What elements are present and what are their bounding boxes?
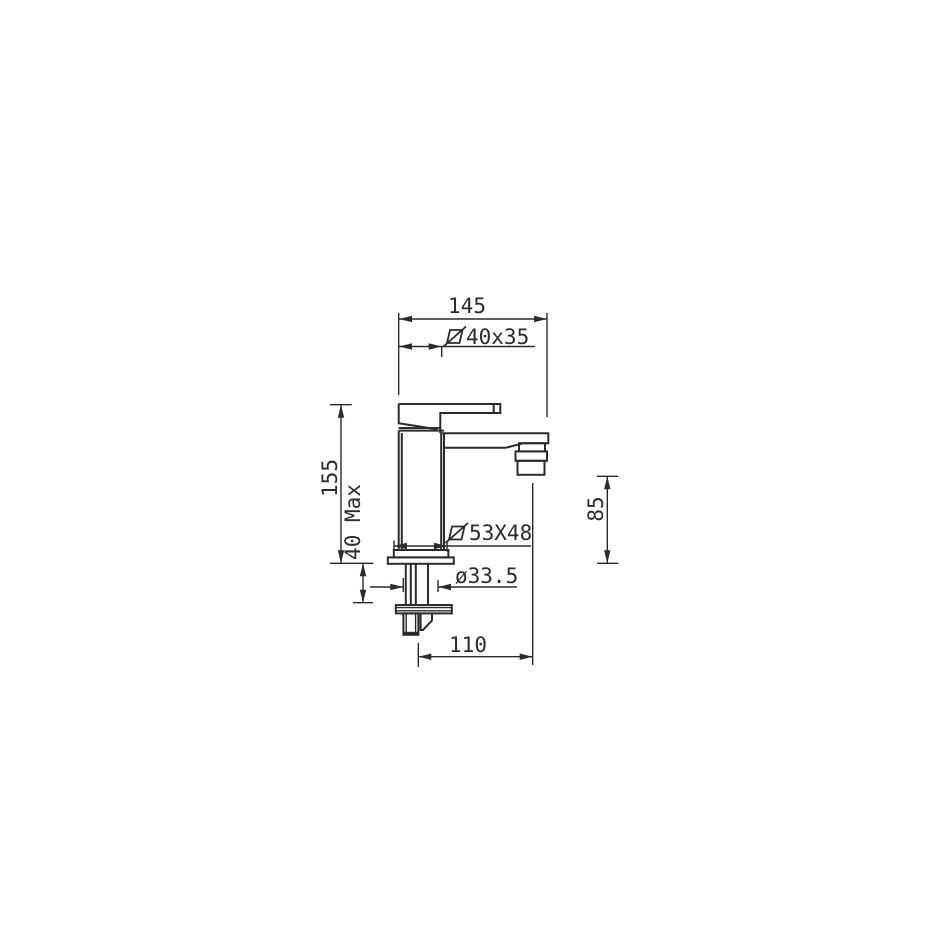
dim-85-label: 85	[584, 496, 608, 521]
arrowhead-top	[604, 476, 610, 489]
arrowhead-top	[338, 405, 344, 418]
arrowhead-bottom	[360, 590, 366, 603]
drawing-canvas: 145 40x35 155	[0, 0, 950, 950]
arrowhead-right	[438, 584, 451, 590]
dimension-53x48: 53X48	[394, 521, 532, 552]
arrowhead-right	[520, 654, 533, 660]
dim-145-label: 145	[448, 294, 486, 318]
dimension-40-max: 40 Max	[341, 484, 373, 603]
arrowhead-left	[418, 654, 431, 660]
arrowhead-left	[394, 543, 407, 549]
dimension-40x35: 40x35	[399, 325, 535, 357]
aerator-collar	[519, 443, 545, 451]
base-flange	[394, 550, 449, 557]
arrowhead-right	[534, 316, 547, 322]
technical-drawing: 145 40x35 155	[0, 0, 950, 950]
faucet-outline	[388, 404, 549, 635]
lock-nut	[396, 605, 452, 613]
spout-arm	[440, 433, 548, 448]
dim-33-5-label: ø33.5	[455, 564, 518, 588]
aerator-body	[516, 451, 548, 460]
arrowhead-top	[360, 563, 366, 576]
arrowhead-left	[390, 584, 403, 590]
handle-front-block	[399, 404, 437, 429]
dim-40x35-label: 40x35	[466, 325, 529, 349]
arrowhead-left	[399, 316, 412, 322]
arrowhead-left	[399, 343, 412, 349]
square-section-symbol	[446, 523, 469, 543]
dim-40max-label: 40 Max	[341, 484, 365, 560]
arrowhead-bottom	[604, 550, 610, 563]
aerator-tip	[518, 461, 545, 475]
square-section-symbol	[444, 327, 467, 347]
dim-53x48-label: 53X48	[469, 521, 532, 545]
cut-supply-tube	[421, 613, 432, 630]
dimension-33-5: ø33.5	[370, 564, 518, 592]
end-fitting-cap	[403, 632, 418, 635]
base-plate	[388, 557, 454, 563]
dim-155-label: 155	[318, 459, 342, 497]
dimension-145: 145	[399, 294, 547, 417]
dim-110-label: 110	[449, 633, 487, 657]
arrowhead-right	[429, 343, 442, 349]
dimension-85: 85	[584, 476, 618, 563]
